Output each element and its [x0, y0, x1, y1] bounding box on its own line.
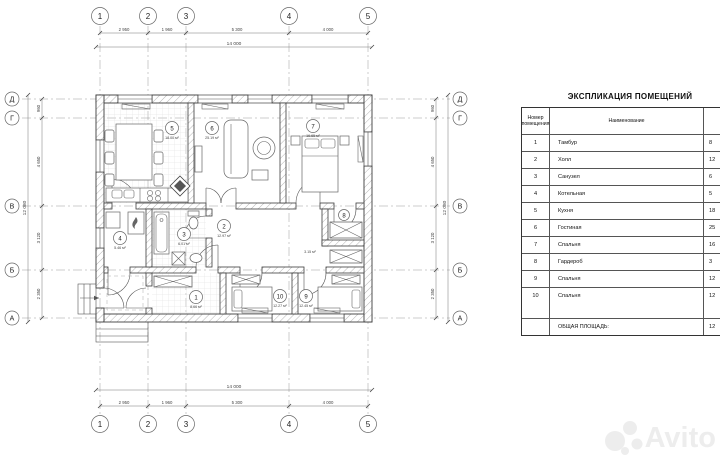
svg-text:3.15 м²: 3.15 м²	[304, 250, 316, 254]
axis-right-v: В	[453, 199, 467, 213]
armchair	[253, 137, 275, 159]
svg-text:Б: Б	[10, 268, 15, 275]
room-marker-1: 18.66 м²	[190, 291, 203, 310]
window-living-top-2	[248, 95, 272, 103]
svg-text:2 350: 2 350	[36, 288, 41, 299]
axis-left-g: Г	[5, 111, 19, 125]
table-cell: 5	[704, 186, 720, 202]
axis-grid-lines	[22, 26, 450, 414]
boiler	[128, 212, 144, 234]
svg-text:12.27 м²: 12.27 м²	[273, 304, 287, 308]
tv-stand	[195, 146, 202, 172]
axis-bottom-5: 5	[360, 416, 377, 433]
table-header-row: Номерпомещения Наименование Площадь	[522, 108, 720, 135]
table-cell: 16	[704, 237, 720, 253]
table-row: 3Санузел6	[522, 169, 720, 186]
table-cell: 12	[704, 152, 720, 168]
svg-text:1: 1	[98, 12, 103, 21]
svg-text:14 000: 14 000	[227, 41, 242, 47]
table-cell: 3	[704, 254, 720, 270]
table-cell: 7	[522, 237, 550, 253]
svg-text:10: 10	[277, 294, 284, 300]
total-label: ОБЩАЯ ПЛОЩАДЬ:	[550, 319, 704, 335]
svg-text:5: 5	[366, 420, 371, 429]
dining-table	[105, 124, 163, 186]
axis-top-2: 2	[140, 8, 157, 25]
axis-left-d: Д	[5, 92, 19, 106]
svg-text:960: 960	[36, 104, 41, 112]
room-marker-5: 518.00 м²	[165, 122, 179, 141]
table-row: 9Спальня12	[522, 271, 720, 288]
svg-text:5 300: 5 300	[232, 27, 243, 32]
table-cell: 4	[522, 186, 550, 202]
entry-porch	[78, 276, 148, 342]
table-cell: 25	[704, 220, 720, 236]
svg-text:В: В	[10, 204, 15, 211]
svg-text:4 000: 4 000	[323, 27, 334, 32]
svg-text:12.45 м²: 12.45 м²	[299, 304, 313, 308]
svg-text:3 120: 3 120	[36, 232, 41, 243]
window-bedroom9-bottom	[310, 314, 344, 322]
svg-text:Г: Г	[10, 116, 14, 123]
avito-watermark: Avito	[603, 417, 716, 459]
svg-text:8.66 м²: 8.66 м²	[190, 305, 202, 309]
table-row: 8Гардероб3	[522, 254, 720, 271]
svg-text:6.01 м²: 6.01 м²	[178, 242, 190, 246]
col-header-area: Площадь	[704, 108, 720, 134]
axis-right-a: А	[453, 311, 467, 325]
axis-bottom-3: 3	[178, 416, 195, 433]
room-marker-2: 212.97 м²	[217, 220, 231, 239]
axis-bottom-2: 2	[140, 416, 157, 433]
table-cell: 6	[522, 220, 550, 236]
table-cell: 12	[704, 288, 720, 304]
sink	[190, 254, 202, 263]
col-header-name: Наименование	[550, 108, 704, 134]
window-living-top-1	[198, 95, 232, 103]
table-cell: Спальня	[550, 271, 704, 287]
washing-machine	[172, 252, 185, 265]
svg-text:2 950: 2 950	[119, 27, 130, 32]
axis-top-1: 1	[92, 8, 109, 25]
window-bedroom7-right	[364, 132, 372, 166]
svg-text:16.65 м²: 16.65 м²	[306, 134, 320, 138]
table-cell: Тамбур	[550, 135, 704, 151]
total-area: 12	[704, 319, 720, 335]
axis-left-b: Б	[5, 263, 19, 277]
table-cell: 5	[522, 203, 550, 219]
svg-text:3: 3	[184, 420, 189, 429]
table-cell: 2	[522, 152, 550, 168]
svg-text:25.19 м²: 25.19 м²	[205, 136, 219, 140]
room-marker-4: 45.46 м²	[114, 232, 127, 251]
table-cell: Котельная	[550, 186, 704, 202]
svg-text:960: 960	[430, 104, 435, 112]
table-row: 4Котельная5	[522, 186, 720, 203]
table-row: 7Спальня16	[522, 237, 720, 254]
toilet	[188, 211, 199, 229]
axis-right-g: Г	[453, 111, 467, 125]
svg-text:3: 3	[184, 12, 189, 21]
boiler-equipment	[106, 212, 120, 228]
hall-cabinet	[330, 250, 362, 263]
tambour-cabinet	[154, 276, 192, 287]
svg-text:2: 2	[146, 12, 151, 21]
table-row: 5Кухня18	[522, 203, 720, 220]
watermark-text: Avito	[645, 422, 716, 455]
table-cell: 8	[522, 254, 550, 270]
room-marker-6: 625.19 м²	[205, 122, 219, 141]
avito-logo-icon	[603, 417, 645, 459]
svg-text:4: 4	[287, 12, 292, 21]
table-cell: Холл	[550, 152, 704, 168]
bathtub	[154, 212, 169, 254]
svg-text:5: 5	[366, 12, 371, 21]
room-marker-3: 36.01 м²	[178, 228, 191, 247]
explication-table: Номерпомещения Наименование Площадь 1Там…	[521, 107, 720, 336]
axis-right-b: Б	[453, 263, 467, 277]
door-boiler	[108, 273, 130, 295]
svg-text:В: В	[458, 204, 463, 211]
table-cell: Спальня	[550, 237, 704, 253]
table-cell: 10	[522, 288, 550, 304]
svg-text:Д: Д	[10, 97, 15, 104]
window-boiler-left	[96, 228, 104, 248]
axis-top-5: 5	[360, 8, 377, 25]
table-row: 2Холл12	[522, 152, 720, 169]
window-kitchen-left	[96, 140, 104, 172]
svg-text:12.97 м²: 12.97 м²	[217, 234, 231, 238]
room-marker-10: 1012.27 м²	[273, 290, 287, 309]
window-bedroom7-top	[312, 95, 348, 103]
table-cell: Гостиная	[550, 220, 704, 236]
table-cell: 18	[704, 203, 720, 219]
table-cell: 1	[522, 135, 550, 151]
axis-top-3: 3	[178, 8, 195, 25]
table-empty-row	[522, 304, 720, 319]
svg-text:2 350: 2 350	[430, 288, 435, 299]
table-cell: 3	[522, 169, 550, 185]
svg-text:4 650: 4 650	[430, 156, 435, 167]
wardrobe-room10	[232, 275, 260, 284]
svg-text:1 960: 1 960	[162, 27, 173, 32]
table-cell: Кухня	[550, 203, 704, 219]
room-marker-9: 912.45 м²	[299, 290, 313, 309]
axis-bottom-4: 4	[281, 416, 298, 433]
svg-text:4 650: 4 650	[36, 156, 41, 167]
svg-text:14 000: 14 000	[227, 384, 242, 390]
table-cell: Спальня	[550, 288, 704, 304]
table-cell: 12	[704, 271, 720, 287]
room-marker-7: 716.65 м²	[306, 120, 320, 139]
sofa	[224, 120, 248, 178]
svg-text:Б: Б	[458, 268, 463, 275]
svg-text:3 120: 3 120	[430, 232, 435, 243]
table-total-row: ОБЩАЯ ПЛОЩАДЬ: 12	[522, 319, 720, 335]
svg-text:5.46 м²: 5.46 м²	[114, 246, 126, 250]
svg-text:4: 4	[287, 420, 292, 429]
bed-room10	[232, 287, 272, 311]
wardrobe8-cabinet	[330, 222, 362, 238]
door-living-double	[206, 188, 236, 203]
bed-room9	[318, 287, 362, 311]
coffee-table	[252, 170, 268, 180]
axis-bottom-1: 1	[92, 416, 109, 433]
svg-text:12 080: 12 080	[442, 200, 448, 215]
svg-text:4 000: 4 000	[323, 400, 334, 405]
screenshot: 518.00 м² 625.19 м² 716.65 м² 45.46 м² 3…	[0, 0, 720, 461]
explication-panel: ЭКСПЛИКАЦИЯ ПОМЕЩЕНИЙ Номерпомещения Наи…	[521, 92, 720, 336]
svg-text:18.00 м²: 18.00 м²	[165, 136, 179, 140]
svg-text:2: 2	[146, 420, 151, 429]
axis-top-4: 4	[281, 8, 298, 25]
axis-left-v: В	[5, 199, 19, 213]
table-body: 1Тамбур82Холл123Санузел64Котельная55Кухн…	[522, 135, 720, 304]
table-cell: 8	[704, 135, 720, 151]
table-cell: 6	[704, 169, 720, 185]
axis-left-a: А	[5, 311, 19, 325]
svg-text:Д: Д	[458, 97, 463, 104]
svg-text:1 960: 1 960	[162, 400, 173, 405]
table-row: 1Тамбур8	[522, 135, 720, 152]
svg-text:Г: Г	[458, 116, 462, 123]
col-header-number: Номерпомещения	[522, 108, 550, 134]
bed-room7	[291, 136, 349, 192]
axis-right-d: Д	[453, 92, 467, 106]
axis-markers: 1 2 3 4 5 1 2 3 4 5 Д Г В Б А Д Г В Б А	[5, 8, 467, 433]
svg-text:5 300: 5 300	[232, 400, 243, 405]
window-bedroom10-bottom	[238, 314, 272, 322]
table-cell: 9	[522, 271, 550, 287]
table-cell: Санузел	[550, 169, 704, 185]
svg-text:А: А	[10, 316, 15, 323]
svg-text:2 950: 2 950	[119, 400, 130, 405]
table-row: 10Спальня12	[522, 288, 720, 304]
svg-text:1: 1	[98, 420, 103, 429]
table-title: ЭКСПЛИКАЦИЯ ПОМЕЩЕНИЙ	[521, 92, 720, 101]
table-cell: Гардероб	[550, 254, 704, 270]
window-kitchen-top	[118, 95, 152, 103]
svg-text:12 080: 12 080	[22, 200, 28, 215]
floor-plan: 518.00 м² 625.19 м² 716.65 м² 45.46 м² 3…	[0, 0, 470, 461]
wardrobe-room9	[332, 275, 360, 284]
svg-text:А: А	[458, 316, 463, 323]
dimensions: 2 950 1 960 5 300 4 000 14 000 14 000 2 …	[22, 27, 450, 408]
table-row: 6Гостиная25	[522, 220, 720, 237]
